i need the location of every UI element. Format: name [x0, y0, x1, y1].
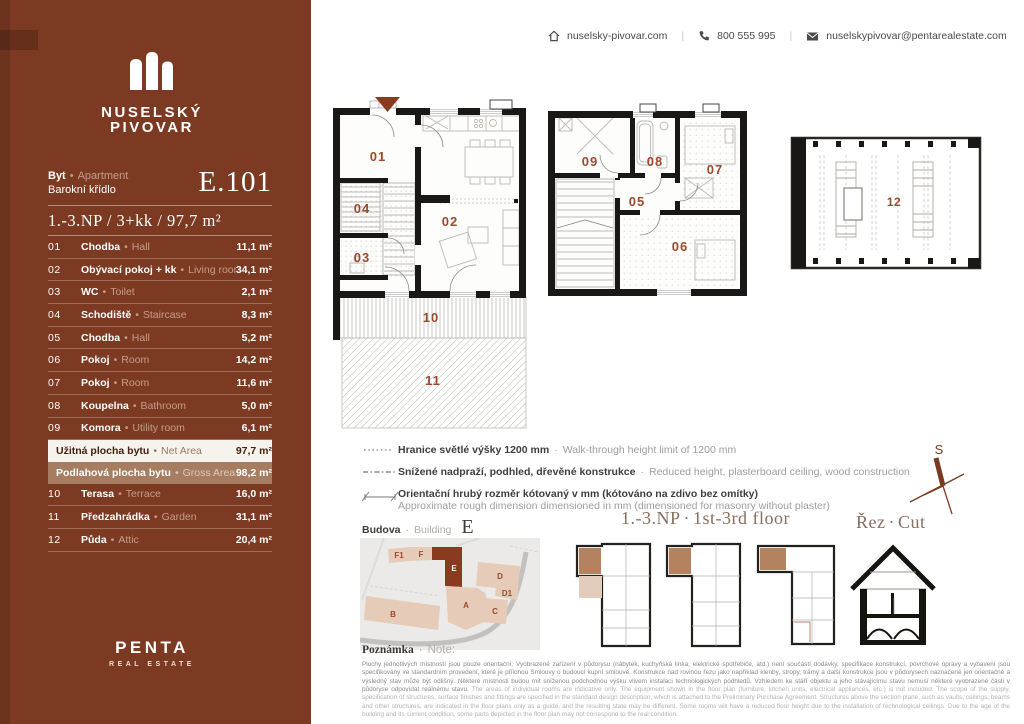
compass: S [902, 440, 972, 518]
note-body: Plochy jednotlivých místností jsou pouze… [362, 661, 1010, 719]
floors-heading: 1.-3.NP·1st-3rd floor [608, 508, 803, 529]
dimension-line-icon [362, 489, 398, 505]
building-code: E [461, 516, 473, 539]
developer-logo: PENTA REAL ESTATE [0, 638, 304, 668]
room-label-03: 03 [354, 250, 370, 265]
table-row: 08Koupelna•Bathroom5,0 m² [48, 395, 272, 418]
email-link[interactable]: nuselskypivovar@pentarealestate.com [806, 30, 1007, 42]
table-row: 03WC•Toilet2,1 m² [48, 281, 272, 304]
site-label-d: D [497, 572, 503, 581]
table-row: 05Chodba•Hall5,2 m² [48, 327, 272, 350]
dotted-line-icon [362, 445, 396, 455]
building-heading: Budova·Building E [362, 516, 474, 539]
room-label-09: 09 [582, 154, 598, 169]
sidebar: NUSELSKÝ PIVOVAR Byt•Apartment Barokní k… [0, 0, 311, 724]
room-label-12: 12 [887, 195, 901, 209]
room-label-06: 06 [672, 239, 688, 254]
room-label-04: 04 [354, 201, 370, 216]
site-label-a: A [463, 601, 469, 610]
table-row: 04Schodiště•Staircase8,3 m² [48, 304, 272, 327]
site-label-b: B [390, 610, 396, 619]
note-title: Poznámka·Note: [362, 644, 455, 656]
site-plan: F1 F E D D1 A B C [360, 538, 540, 650]
brand-name: NUSELSKÝ PIVOVAR [0, 105, 304, 135]
room-table: 01Chodba•Hall11,1 m² 02Obývací pokoj + k… [48, 236, 272, 552]
mail-icon [806, 31, 819, 42]
floor-plan-attic: 12 [788, 130, 988, 275]
net-area-row: Užitná plocha bytu•Net Area97,7 m² [48, 440, 272, 462]
unit-highlight [579, 548, 601, 574]
legend-row: Snížené nadpraží, podhled, dřevěné konst… [362, 466, 952, 480]
table-row: 07Pokoj•Room11,6 m² [48, 372, 272, 395]
site-label-f: F [419, 550, 424, 559]
divider [48, 205, 272, 206]
sidebar-edge-notch [0, 30, 38, 50]
separator: | [677, 30, 688, 42]
separator: | [786, 30, 797, 42]
unit-highlight [669, 548, 691, 574]
legend-row: Hranice světlé výšky 1200 mm·Walk-throug… [362, 444, 952, 458]
gross-area-row: Podlahová plocha bytu•Gross Area98,2 m² [48, 462, 272, 484]
table-row: 12Půda•Attic20,4 m² [48, 529, 272, 552]
site-label-d1: D1 [502, 589, 513, 598]
section-drawing [848, 542, 938, 652]
site-label-c: C [492, 607, 498, 616]
key-plan-3 [754, 540, 838, 652]
unit-highlight [760, 548, 786, 570]
roof [852, 548, 934, 589]
chimney [844, 188, 862, 220]
key-plan-1 [574, 540, 656, 652]
unit-summary: 1.-3.NP / 3+kk / 97,7 m² [48, 211, 272, 231]
contact-header: nuselsky-pivovar.com | 800 555 995 | nus… [548, 30, 1008, 42]
table-row: 11Předzahrádka•Garden31,1 m² [48, 506, 272, 529]
room-label-05: 05 [629, 194, 645, 209]
room-label-07: 07 [707, 162, 723, 177]
room-label-11: 11 [425, 373, 441, 388]
table-row: 10Terasa•Terrace16,0 m² [48, 484, 272, 507]
floor-plan-upper: 09 08 07 05 06 [545, 98, 750, 303]
brewery-bars-icon [130, 52, 174, 90]
dash-dot-line-icon [362, 467, 396, 477]
website-link[interactable]: nuselsky-pivovar.com [548, 30, 667, 42]
home-icon [548, 30, 560, 42]
unit-header: Byt•Apartment Barokní křídlo E.101 [48, 170, 272, 196]
room-label-08: 08 [647, 154, 663, 169]
phone-link[interactable]: 800 555 995 [698, 30, 775, 42]
site-label-f1: F1 [394, 551, 404, 560]
room-label-01: 01 [370, 149, 386, 164]
room-label-10: 10 [423, 310, 439, 325]
room-label-02: 02 [442, 214, 458, 229]
compass-needle [936, 458, 943, 486]
attic-wall [792, 138, 806, 268]
floor-plan-ground: 01 04 03 02 10 11 [330, 95, 530, 430]
table-row: 09Komora•Utility room6,1 m² [48, 418, 272, 441]
unit-code: E.101 [199, 166, 272, 199]
phone-icon [698, 30, 710, 42]
table-row: 01Chodba•Hall11,1 m² [48, 236, 272, 259]
site-label-e: E [451, 564, 457, 573]
table-row: 02Obývací pokoj + kk•Living room34,1 m² [48, 259, 272, 282]
compass-north-label: S [935, 442, 944, 457]
key-plan-2 [664, 540, 746, 652]
table-row: 06Pokoj•Room14,2 m² [48, 349, 272, 372]
brand-logo: NUSELSKÝ PIVOVAR [0, 52, 304, 135]
vaults [867, 630, 919, 640]
